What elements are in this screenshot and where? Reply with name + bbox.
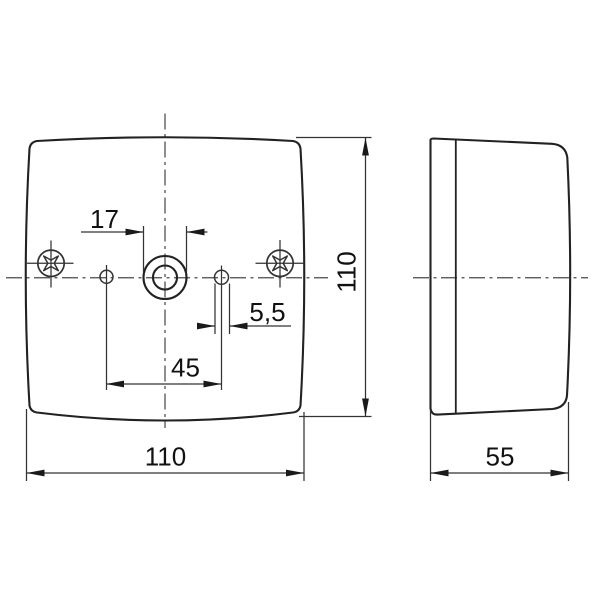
- technical-drawing: 17 5,5 45 110 110: [0, 0, 600, 600]
- side-view: [431, 139, 571, 415]
- arrowhead: [187, 229, 205, 236]
- dimension-label: 55: [486, 442, 515, 472]
- arrowhead: [197, 323, 215, 330]
- dimension-label: 45: [171, 353, 200, 383]
- dimension-label: 110: [332, 251, 362, 292]
- arrowhead: [286, 470, 304, 477]
- dimension-label: 5,5: [249, 297, 285, 327]
- arrowhead: [431, 470, 449, 477]
- dimension-height: 110: [296, 138, 372, 417]
- arrowhead: [27, 470, 45, 477]
- arrowhead: [551, 470, 569, 477]
- arrowhead: [106, 381, 124, 388]
- dimension-boss-diameter: 17: [81, 204, 208, 272]
- dimension-label: 110: [145, 442, 186, 472]
- screw-head-right: [256, 240, 305, 288]
- dimension-label: 17: [90, 204, 119, 234]
- side-view-outline: [431, 139, 571, 415]
- arrowhead: [362, 138, 369, 156]
- arrowhead: [126, 229, 144, 236]
- dimension-small-hole-diameter: 5,5: [197, 284, 291, 335]
- drawing-canvas: 17 5,5 45 110 110: [0, 0, 600, 600]
- screw-head-left: [27, 241, 74, 288]
- arrowhead: [204, 381, 222, 388]
- arrowhead: [362, 399, 369, 417]
- centerlines: [6, 114, 588, 429]
- arrowhead: [230, 323, 248, 330]
